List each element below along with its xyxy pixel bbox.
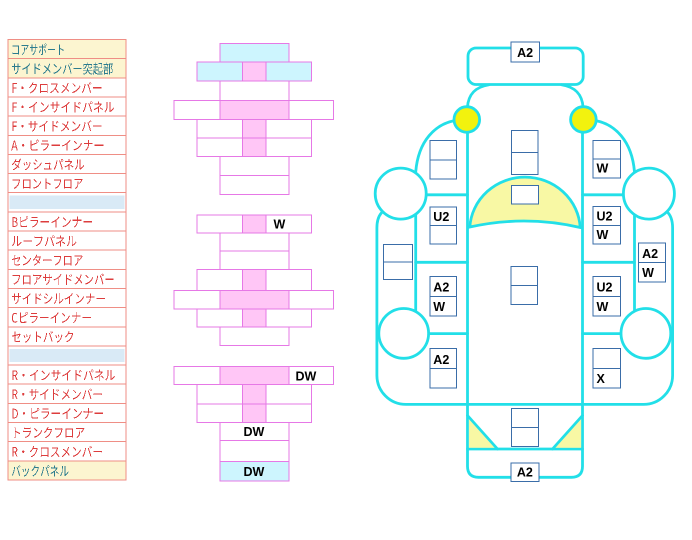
svg-text:DW: DW: [244, 465, 265, 479]
svg-text:DW: DW: [244, 425, 265, 439]
svg-text:X: X: [597, 372, 606, 386]
svg-text:W: W: [597, 162, 609, 176]
svg-text:A2: A2: [642, 247, 658, 261]
svg-text:A2: A2: [517, 46, 533, 60]
svg-text:A2: A2: [433, 281, 449, 295]
svg-text:DW: DW: [296, 369, 317, 383]
svg-text:W: W: [597, 300, 609, 314]
svg-text:U2: U2: [433, 210, 449, 224]
svg-text:A2: A2: [517, 466, 533, 480]
svg-text:W: W: [274, 218, 286, 232]
svg-text:U2: U2: [597, 210, 613, 224]
svg-text:W: W: [642, 266, 654, 280]
svg-text:W: W: [597, 228, 609, 242]
svg-text:W: W: [433, 300, 445, 314]
svg-text:U2: U2: [597, 281, 613, 295]
svg-text:A2: A2: [433, 353, 449, 367]
